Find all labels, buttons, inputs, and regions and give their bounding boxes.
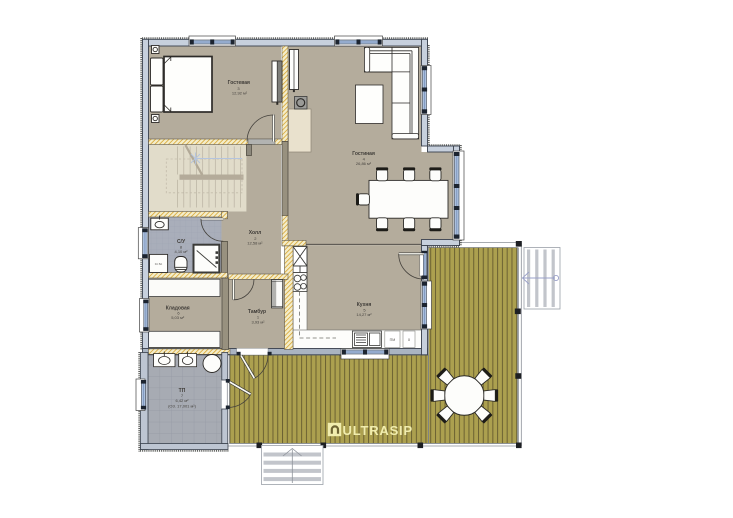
svg-text:5,03 м²: 5,03 м²: [171, 315, 185, 320]
svg-text:12,58 м²: 12,58 м²: [247, 241, 263, 246]
svg-text:Ст.М.: Ст.М.: [155, 262, 163, 266]
svg-text:ПМ: ПМ: [390, 338, 396, 342]
svg-text:4,10 м²: 4,10 м²: [175, 249, 189, 254]
svg-text:12,92 м²: 12,92 м²: [232, 91, 248, 96]
svg-text:6,42 м²: 6,42 м²: [176, 398, 190, 403]
svg-text:14,27 м²: 14,27 м²: [356, 312, 372, 317]
svg-text:26,86 м²: 26,86 м²: [356, 161, 372, 166]
svg-text:3,93 м²: 3,93 м²: [252, 320, 266, 325]
svg-text:ULTRASIP: ULTRASIP: [343, 423, 413, 438]
svg-text:(ОЗ. 17,001 м²): (ОЗ. 17,001 м²): [168, 404, 197, 409]
